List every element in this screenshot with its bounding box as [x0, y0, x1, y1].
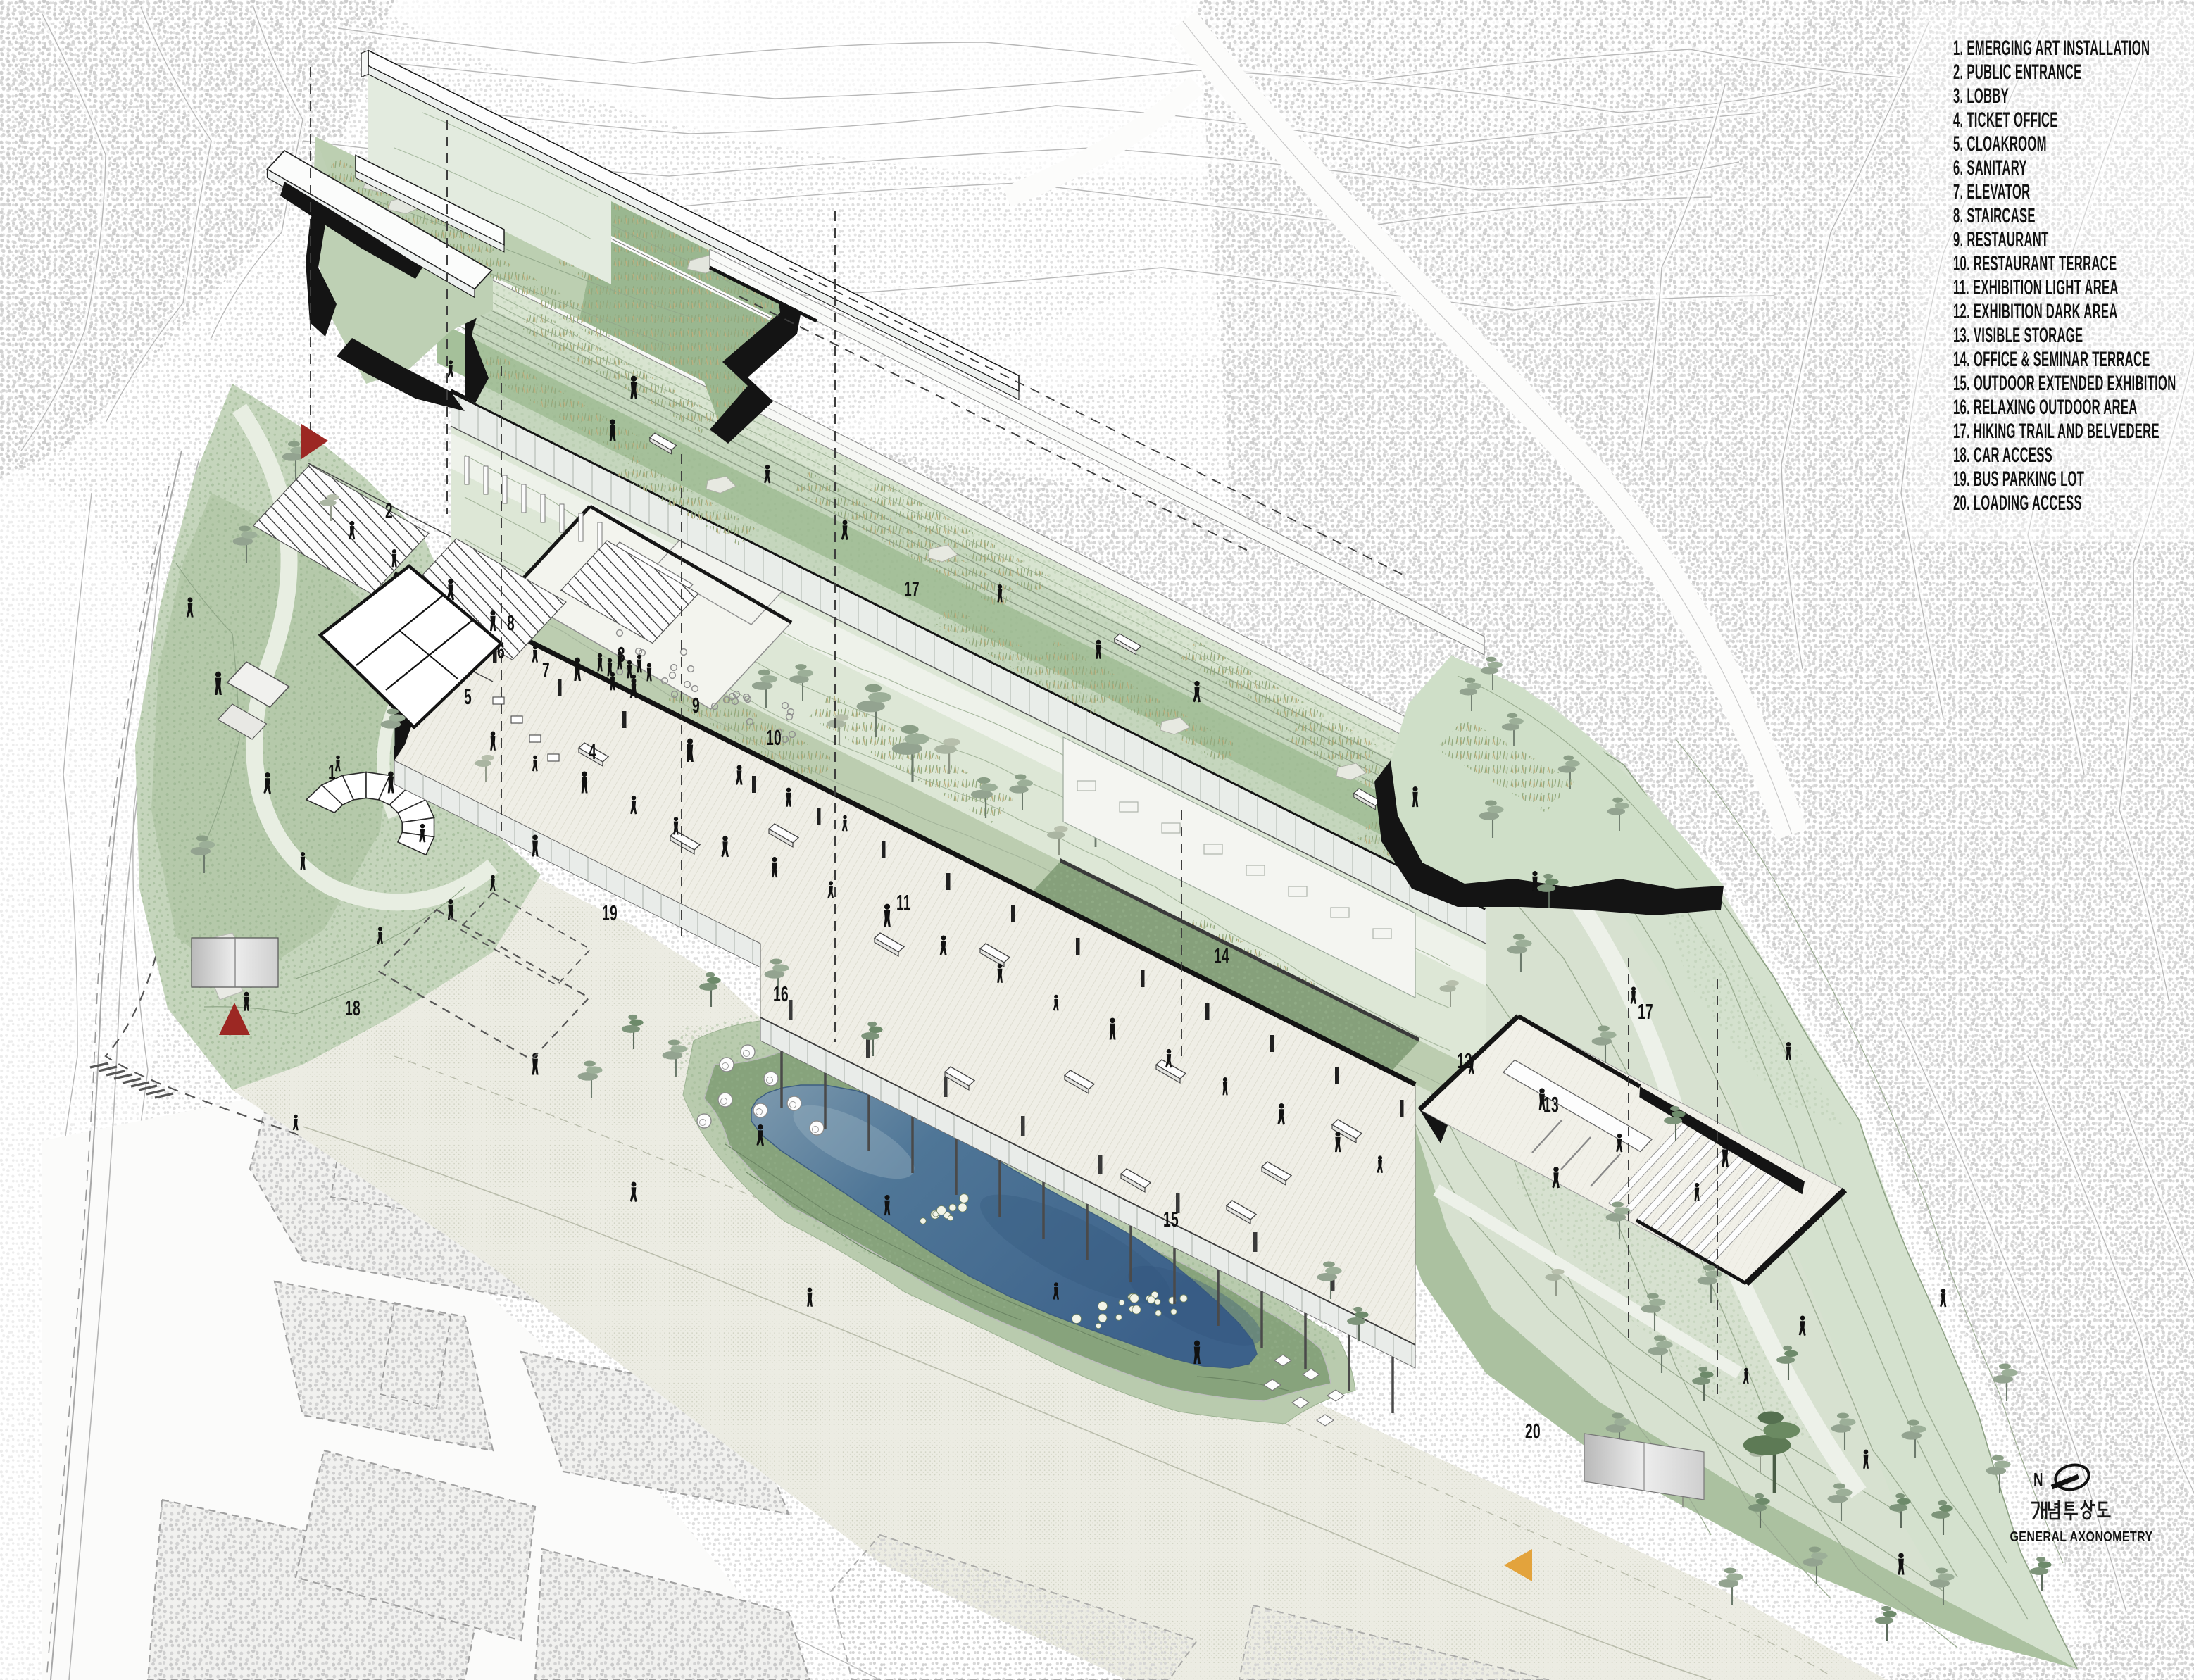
svg-text:17. HIKING TRAIL AND BELVEDERE: 17. HIKING TRAIL AND BELVEDERE [1953, 420, 2159, 443]
svg-text:5: 5 [464, 686, 472, 710]
svg-text:3. LOBBY: 3. LOBBY [1953, 84, 2009, 108]
svg-text:9. RESTAURANT: 9. RESTAURANT [1953, 228, 2049, 251]
svg-text:10. RESTAURANT TERRACE: 10. RESTAURANT TERRACE [1953, 252, 2117, 275]
svg-text:15: 15 [1163, 1208, 1179, 1232]
svg-text:16: 16 [773, 983, 789, 1007]
svg-text:1: 1 [328, 761, 336, 785]
svg-text:1. EMERGING ART INSTALLATION: 1. EMERGING ART INSTALLATION [1953, 37, 2150, 60]
svg-text:18: 18 [345, 997, 361, 1021]
svg-text:9: 9 [692, 694, 700, 718]
svg-text:N: N [2033, 1469, 2043, 1490]
svg-text:13: 13 [1543, 1093, 1559, 1117]
svg-text:19. BUS PARKING LOT: 19. BUS PARKING LOT [1953, 468, 2084, 491]
svg-text:2. PUBLIC ENTRANCE: 2. PUBLIC ENTRANCE [1953, 61, 2082, 84]
svg-text:18. CAR ACCESS: 18. CAR ACCESS [1953, 444, 2052, 467]
svg-text:13. VISIBLE STORAGE: 13. VISIBLE STORAGE [1953, 324, 2083, 347]
svg-text:20. LOADING ACCESS: 20. LOADING ACCESS [1953, 491, 2082, 515]
svg-text:5. CLOAKROOM: 5. CLOAKROOM [1953, 132, 2047, 156]
svg-text:4: 4 [589, 741, 596, 765]
svg-text:19: 19 [602, 902, 618, 926]
svg-text:8: 8 [507, 612, 515, 636]
svg-text:12: 12 [1457, 1050, 1472, 1074]
svg-text:20: 20 [1525, 1420, 1541, 1444]
svg-text:14: 14 [1214, 945, 1229, 969]
svg-text:11: 11 [896, 891, 911, 915]
svg-text:11. EXHIBITION LIGHT AREA: 11. EXHIBITION LIGHT AREA [1953, 276, 2119, 299]
svg-text:7: 7 [542, 659, 550, 683]
svg-text:15. OUTDOOR EXTENDED EXHIBITIO: 15. OUTDOOR EXTENDED EXHIBITION [1953, 372, 2176, 395]
svg-text:10: 10 [766, 727, 782, 751]
svg-text:7. ELEVATOR: 7. ELEVATOR [1953, 180, 2030, 203]
svg-text:6. SANITARY: 6. SANITARY [1953, 156, 2027, 180]
svg-text:8. STAIRCASE: 8. STAIRCASE [1953, 204, 2036, 227]
svg-text:16. RELAXING OUTDOOR AREA: 16. RELAXING OUTDOOR AREA [1953, 396, 2138, 419]
svg-text:GENERAL AXONOMETRY: GENERAL AXONOMETRY [2010, 1529, 2152, 1544]
svg-text:3: 3 [618, 644, 625, 667]
svg-text:12. EXHIBITION DARK AREA: 12. EXHIBITION DARK AREA [1953, 300, 2118, 323]
svg-text:2: 2 [385, 500, 393, 524]
svg-text:14. OFFICE & SEMINAR TERRACE: 14. OFFICE & SEMINAR TERRACE [1953, 348, 2150, 371]
svg-text:17: 17 [904, 578, 920, 602]
svg-text:6: 6 [497, 640, 505, 664]
svg-text:17: 17 [1638, 1001, 1653, 1024]
svg-text:4. TICKET OFFICE: 4. TICKET OFFICE [1953, 108, 2058, 132]
